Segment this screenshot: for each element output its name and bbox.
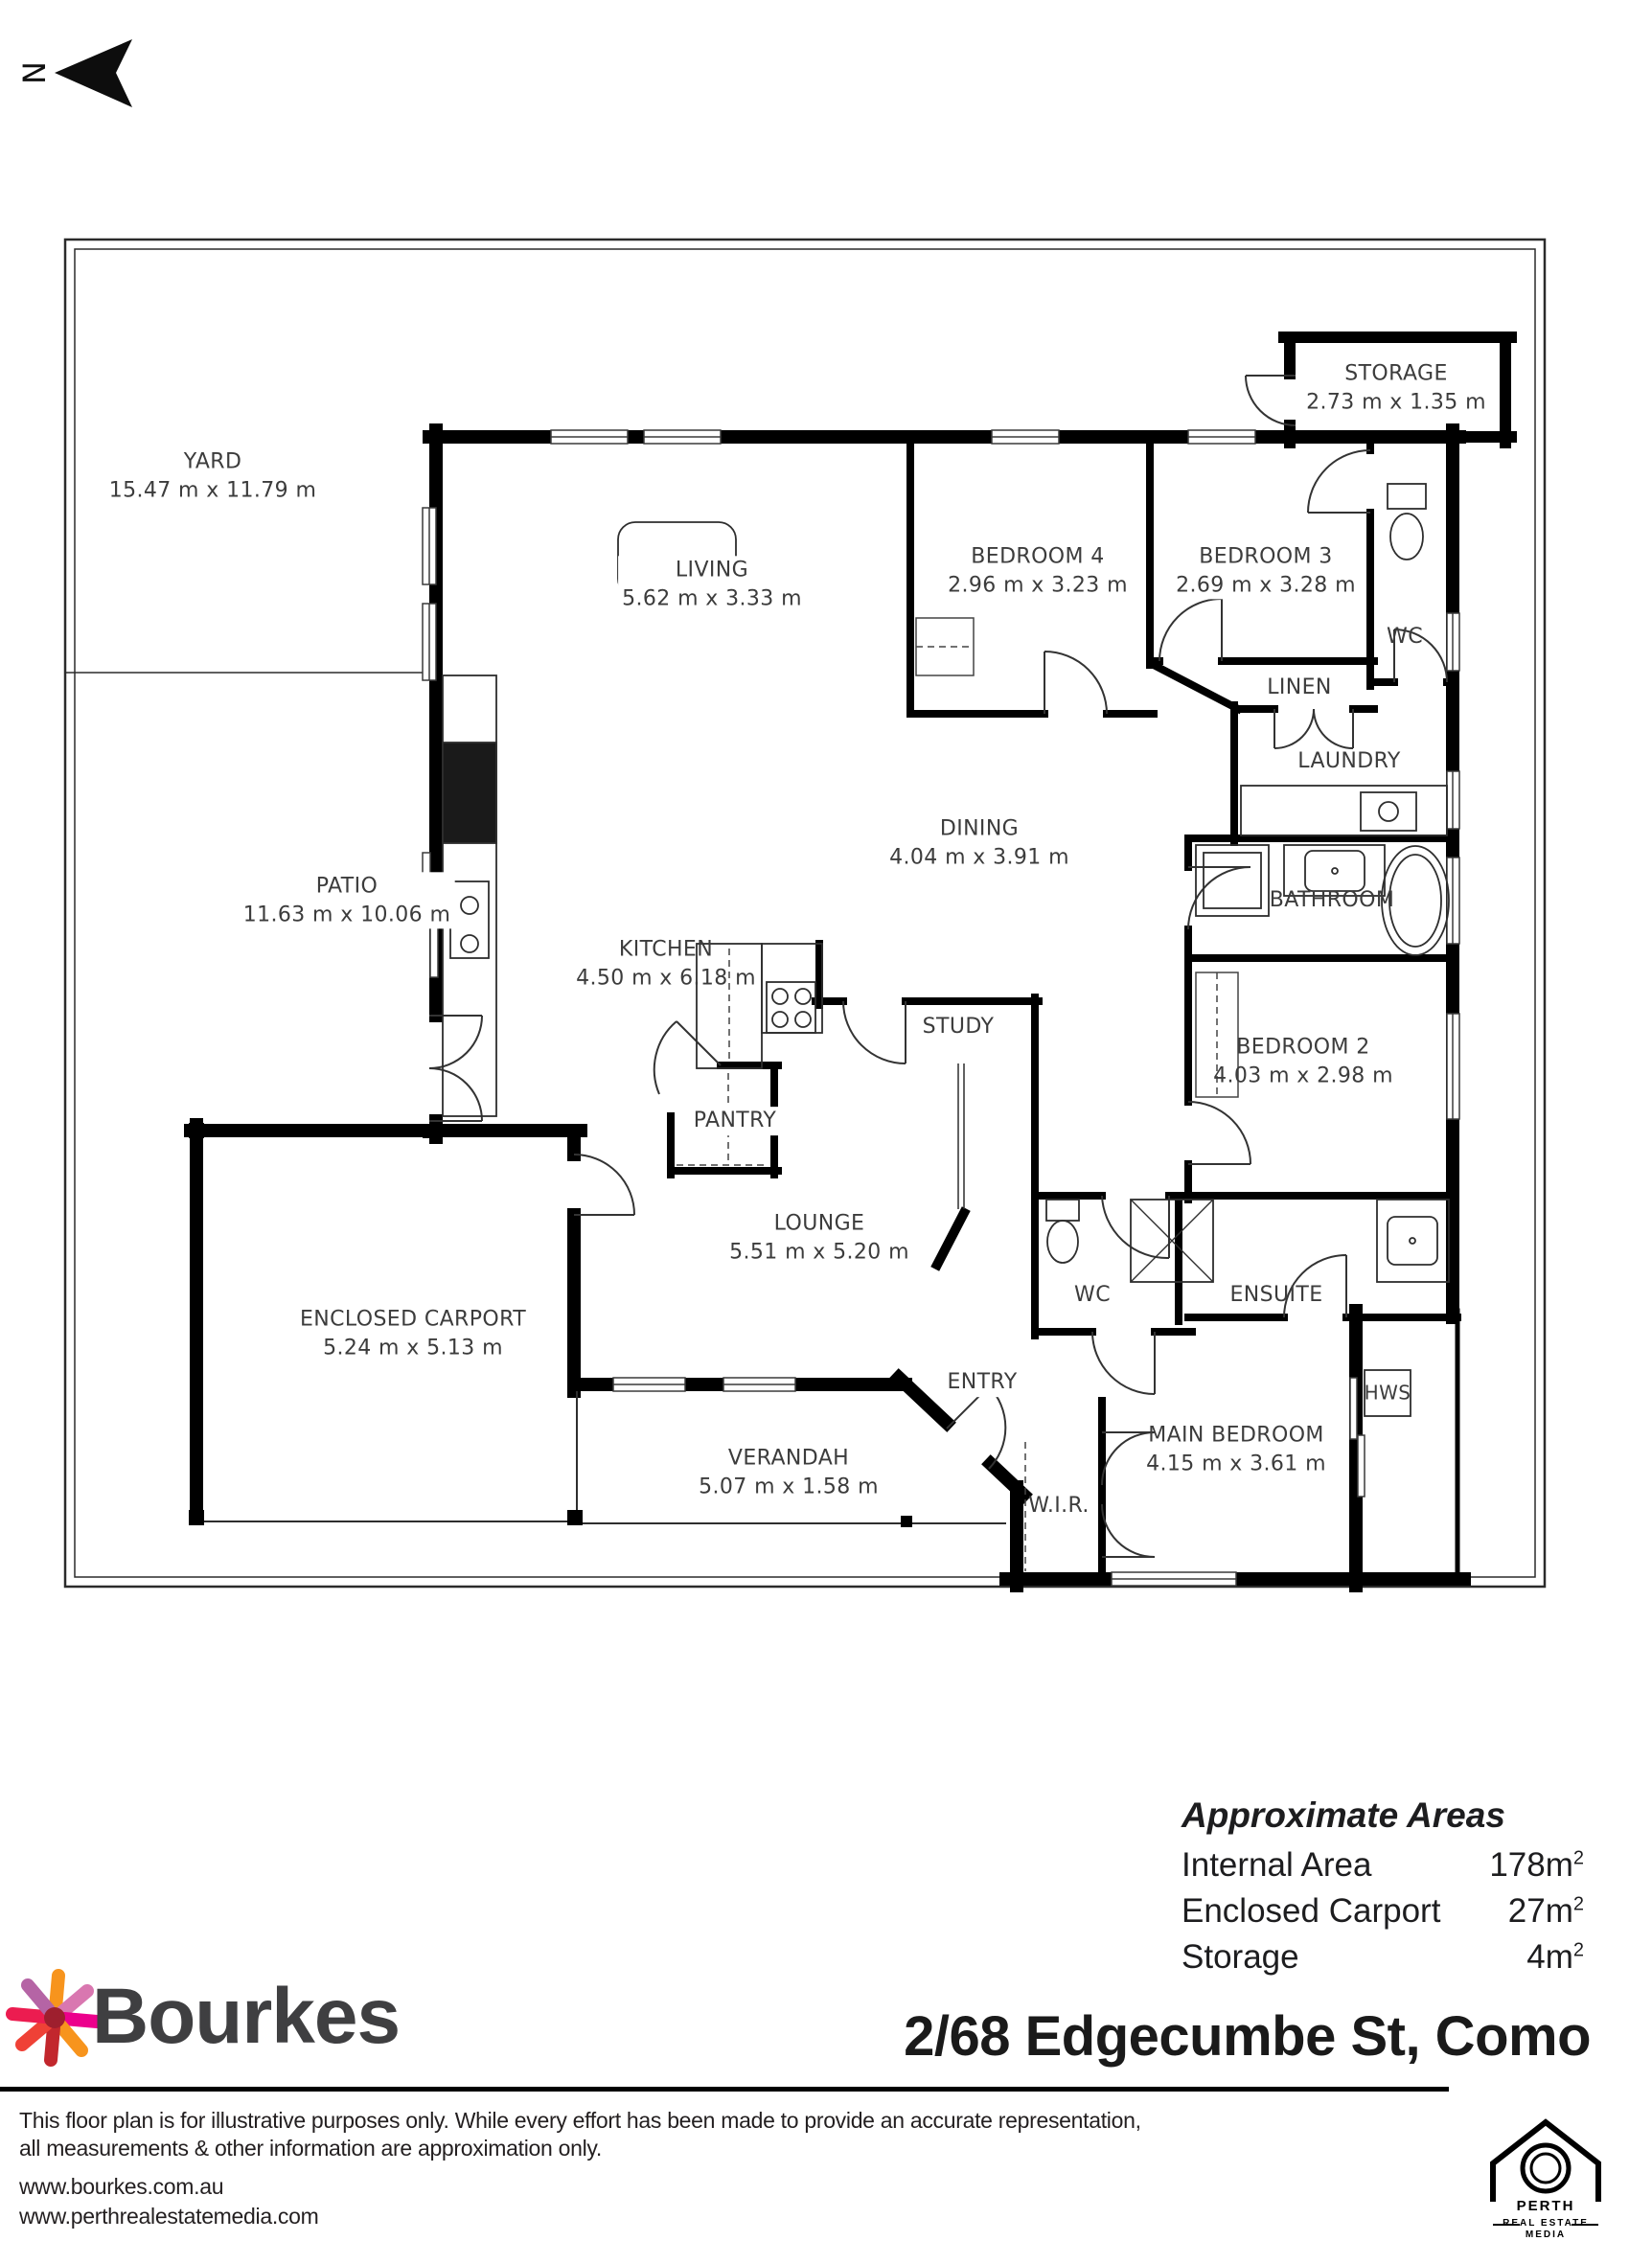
room-label-bedroom2: BEDROOM 2 4.03 m x 2.98 m — [1209, 1033, 1397, 1089]
bourkes-starburst-icon — [12, 1976, 97, 2060]
area-label: Storage — [1182, 1934, 1299, 1980]
agency-logo-text: Bourkes — [92, 1972, 400, 2062]
disclaimer-line1: This floor plan is for illustrative purp… — [19, 2108, 1141, 2134]
room-label-main-bedroom: MAIN BEDROOM 4.15 m x 3.61 m — [1142, 1421, 1330, 1477]
area-row-storage: Storage 4m2 — [1182, 1934, 1584, 1980]
room-label-verandah: VERANDAH 5.07 m x 1.58 m — [695, 1444, 883, 1500]
room-label-yard: YARD 15.47 m x 11.79 m — [105, 447, 321, 504]
room-label-bathroom: BATHROOM — [1266, 886, 1399, 915]
room-label-living: LIVING 5.62 m x 3.33 m — [618, 556, 806, 612]
room-label-kitchen: KITCHEN 4.50 m x 6.18 m — [572, 935, 760, 992]
area-label: Internal Area — [1182, 1842, 1371, 1888]
room-label-hws: HWS — [1365, 1381, 1411, 1406]
room-label-storage: STORAGE 2.73 m x 1.35 m — [1302, 359, 1490, 416]
area-row-carport: Enclosed Carport 27m2 — [1182, 1888, 1584, 1934]
area-value: 178m2 — [1489, 1842, 1584, 1888]
room-label-pantry: PANTRY — [690, 1107, 781, 1135]
room-label-ensuite: ENSUITE — [1226, 1281, 1326, 1310]
website-bourkes: www.bourkes.com.au — [19, 2174, 223, 2200]
room-label-lounge: LOUNGE 5.51 m x 5.20 m — [725, 1209, 913, 1266]
room-label-study: STUDY — [919, 1013, 998, 1041]
disclaimer-line2: all measurements & other information are… — [19, 2136, 602, 2161]
room-label-patio: PATIO 11.63 m x 10.06 m — [240, 872, 455, 928]
room-label-wir: W.I.R. — [1024, 1492, 1093, 1521]
room-label-laundry: LAUNDRY — [1294, 747, 1404, 776]
area-label: Enclosed Carport — [1182, 1888, 1440, 1934]
floor-plan-page: N — [0, 0, 1652, 2241]
areas-title: Approximate Areas — [1182, 1795, 1584, 1836]
north-label: N — [16, 61, 53, 84]
fixtures — [196, 484, 1449, 1523]
room-label-dining: DINING 4.04 m x 3.91 m — [885, 814, 1073, 871]
area-value: 4m2 — [1526, 1934, 1584, 1980]
north-arrow-icon: N — [16, 39, 132, 107]
room-label-bedroom3: BEDROOM 3 2.69 m x 3.28 m — [1172, 542, 1360, 599]
property-address: 2/68 Edgecumbe St, Como — [904, 2004, 1591, 2069]
room-label-linen: LINEN — [1263, 674, 1336, 702]
approximate-areas-block: Approximate Areas Internal Area 178m2 En… — [1182, 1795, 1584, 1980]
room-label-wc: WC — [1383, 623, 1427, 652]
room-label-carport: ENCLOSED CARPORT 5.24 m x 5.13 m — [296, 1305, 530, 1361]
website-media: www.perthrealestatemedia.com — [19, 2204, 318, 2230]
media-logo-line2: REAL ESTATE — [1503, 2218, 1589, 2229]
room-label-wc-ensuite: WC — [1070, 1281, 1114, 1310]
room-label-entry: ENTRY — [943, 1368, 1021, 1397]
area-value: 27m2 — [1508, 1888, 1584, 1934]
room-label-bedroom4: BEDROOM 4 2.96 m x 3.23 m — [944, 542, 1132, 599]
footer-divider — [0, 2087, 1449, 2092]
media-logo-line1: PERTH — [1517, 2198, 1575, 2214]
media-logo-line3: MEDIA — [1526, 2230, 1566, 2240]
area-row-internal: Internal Area 178m2 — [1182, 1842, 1584, 1888]
